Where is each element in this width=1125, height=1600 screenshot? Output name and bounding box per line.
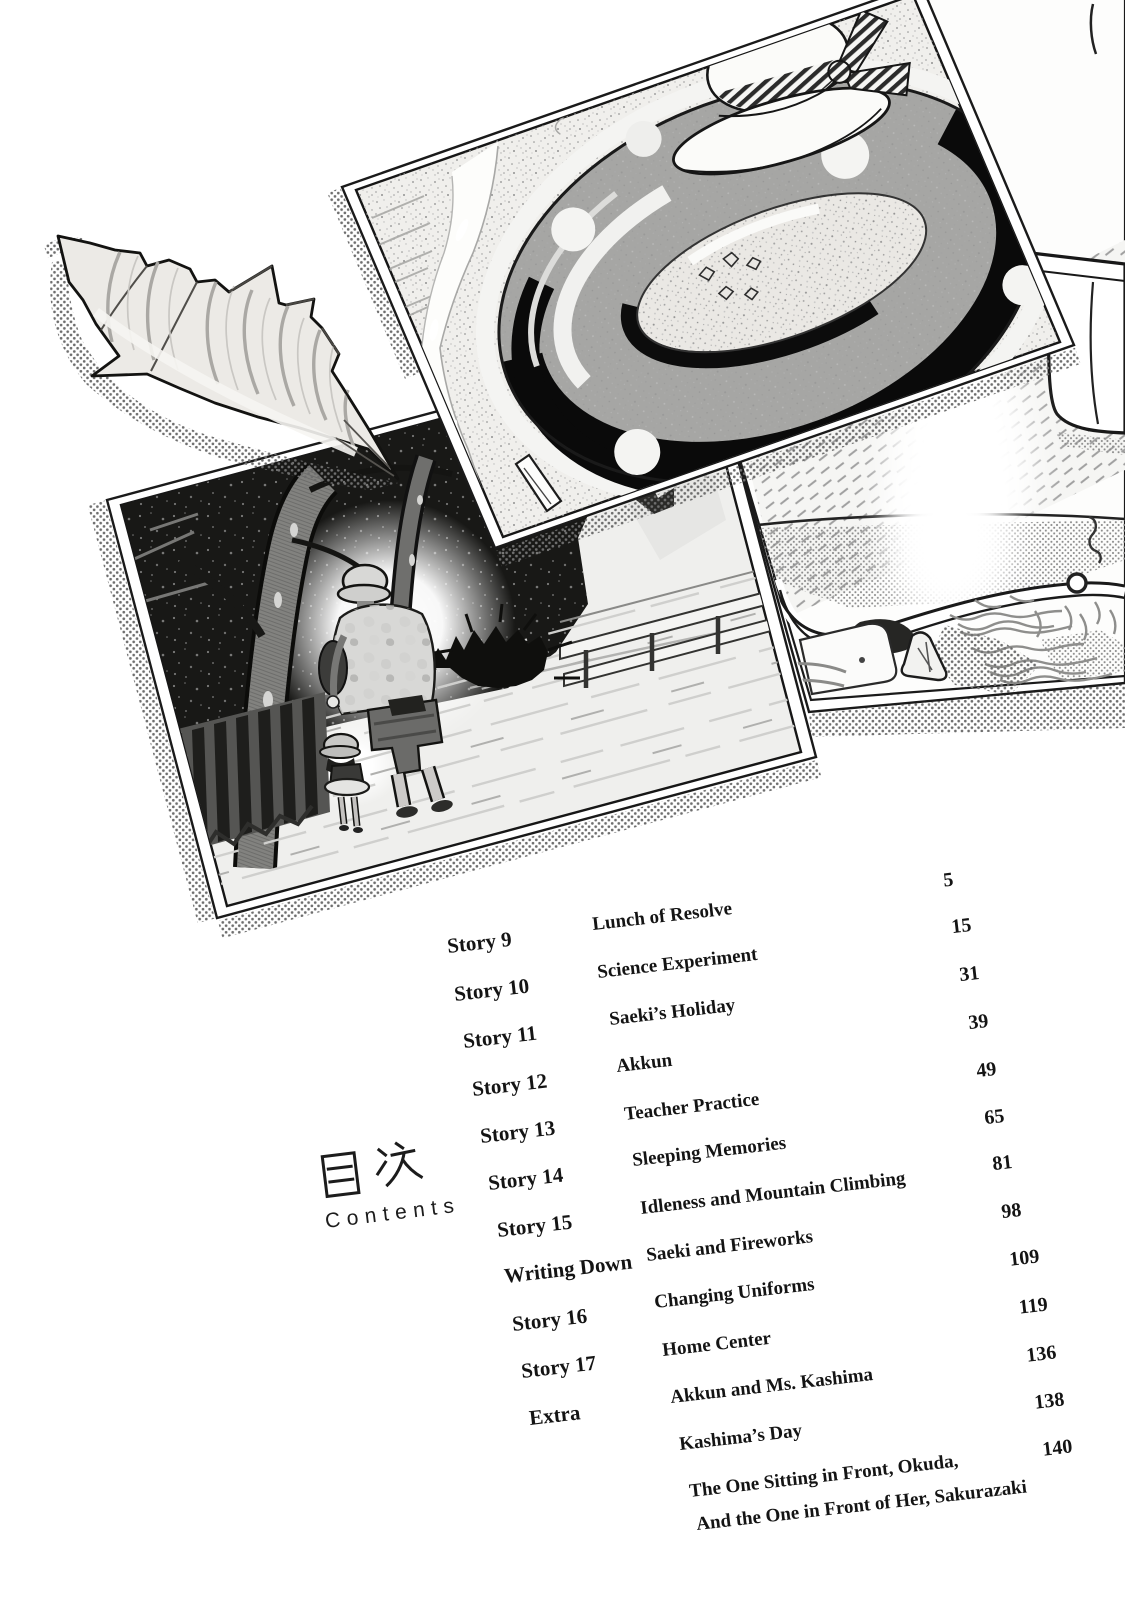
- svg-text:31: 31: [958, 962, 980, 986]
- svg-text:Story 12: Story 12: [471, 1069, 548, 1101]
- svg-text:Contents: Contents: [324, 1194, 462, 1233]
- svg-text:Lunch of Resolve: Lunch of Resolve: [591, 898, 733, 935]
- svg-text:Story 14: Story 14: [487, 1163, 565, 1195]
- svg-text:Story 9: Story 9: [446, 927, 513, 958]
- svg-text:Story 16: Story 16: [511, 1304, 588, 1336]
- svg-text:Idleness and Mountain Climbing: Idleness and Mountain Climbing: [639, 1168, 907, 1219]
- svg-text:Changing Uniforms: Changing Uniforms: [653, 1274, 815, 1313]
- svg-text:140: 140: [1041, 1435, 1073, 1460]
- svg-text:Story 10: Story 10: [453, 974, 530, 1006]
- svg-text:Writing Down: Writing Down: [503, 1250, 634, 1288]
- svg-text:Extra: Extra: [528, 1400, 582, 1430]
- svg-text:Science Experiment: Science Experiment: [596, 944, 759, 983]
- svg-text:65: 65: [983, 1105, 1005, 1129]
- svg-text:Story 17: Story 17: [520, 1351, 597, 1383]
- svg-text:Story 13: Story 13: [479, 1116, 556, 1148]
- svg-text:Akkun: Akkun: [615, 1050, 673, 1077]
- svg-text:138: 138: [1033, 1388, 1065, 1413]
- svg-text:136: 136: [1025, 1341, 1057, 1366]
- svg-text:49: 49: [975, 1058, 997, 1082]
- svg-text:Home Center: Home Center: [661, 1328, 772, 1361]
- svg-text:Story 15: Story 15: [496, 1210, 573, 1242]
- svg-text:Saeki’s Holiday: Saeki’s Holiday: [608, 995, 737, 1030]
- svg-text:98: 98: [1000, 1199, 1022, 1223]
- svg-text:Teacher Practice: Teacher Practice: [623, 1089, 760, 1125]
- svg-text:5: 5: [942, 869, 954, 892]
- svg-text:Story 11: Story 11: [462, 1021, 538, 1053]
- svg-text:Akkun and Ms. Kashima: Akkun and Ms. Kashima: [669, 1364, 874, 1408]
- svg-text:119: 119: [1018, 1293, 1049, 1318]
- svg-text:15: 15: [950, 914, 972, 938]
- svg-text:109: 109: [1008, 1245, 1040, 1270]
- svg-text:Saeki and Fireworks: Saeki and Fireworks: [645, 1226, 814, 1266]
- svg-text:Kashima’s Day: Kashima’s Day: [678, 1420, 803, 1455]
- svg-text:39: 39: [967, 1010, 989, 1034]
- svg-text:81: 81: [991, 1151, 1013, 1175]
- svg-text:Sleeping Memories: Sleeping Memories: [631, 1133, 787, 1171]
